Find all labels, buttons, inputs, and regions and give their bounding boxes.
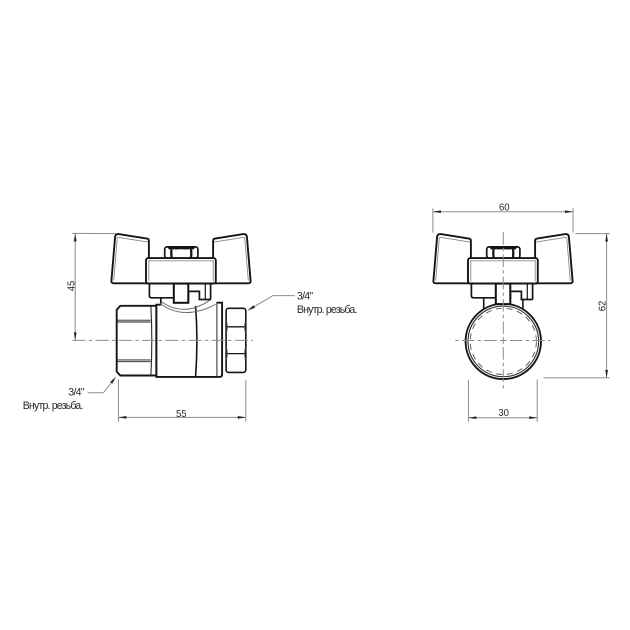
svg-text:60: 60: [499, 203, 510, 214]
svg-text:3/4": 3/4": [297, 291, 314, 303]
svg-text:Внутр. резьба.: Внутр. резьба.: [297, 304, 358, 316]
svg-text:62: 62: [597, 300, 608, 311]
svg-text:55: 55: [176, 409, 187, 420]
svg-text:Внутр. резьба.: Внутр. резьба.: [23, 400, 84, 412]
svg-text:3/4": 3/4": [68, 386, 85, 398]
svg-text:30: 30: [498, 408, 509, 419]
svg-text:45: 45: [67, 280, 78, 291]
